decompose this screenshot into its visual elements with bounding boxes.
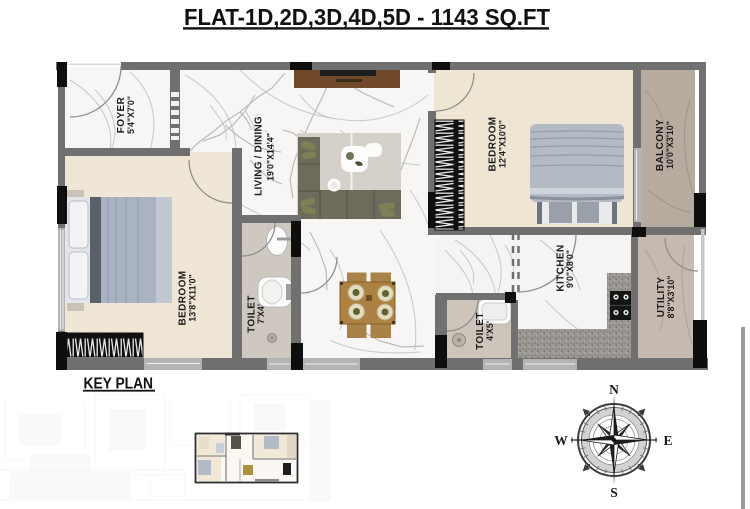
svg-text:19'0"X14'4": 19'0"X14'4": [266, 133, 276, 181]
svg-text:LIVING / DINING: LIVING / DINING: [254, 116, 265, 196]
svg-text:8'8"X3'10": 8'8"X3'10": [666, 276, 676, 319]
svg-text:10'0"X3'10": 10'0"X3'10": [665, 121, 675, 169]
svg-text:4'X5': 4'X5': [485, 321, 495, 341]
svg-text:12'4"X10'0": 12'4"X10'0": [498, 120, 508, 168]
svg-text:13'8"X11'0": 13'8"X11'0": [188, 274, 198, 321]
svg-text:5'4"X7'0": 5'4"X7'0": [126, 96, 136, 134]
svg-text:N: N: [609, 382, 619, 397]
svg-text:E: E: [663, 433, 672, 448]
svg-text:9'0"X8'0": 9'0"X8'0": [565, 250, 575, 288]
svg-text:FLAT-1D,2D,3D,4D,5D - 1143 SQ.: FLAT-1D,2D,3D,4D,5D - 1143 SQ.FT: [184, 4, 550, 30]
svg-text:W: W: [554, 433, 568, 448]
svg-text:S: S: [610, 485, 618, 500]
svg-text:7'X4': 7'X4': [256, 304, 266, 324]
